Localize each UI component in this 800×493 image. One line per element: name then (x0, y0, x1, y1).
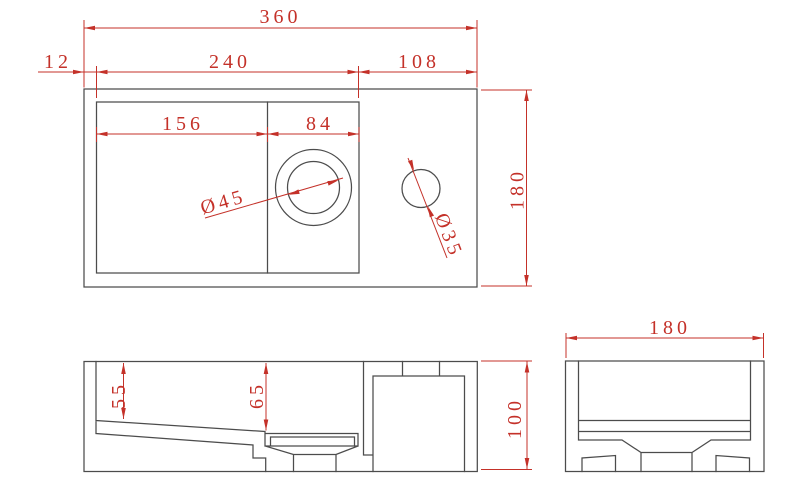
dim-arrowhead (348, 70, 359, 75)
dim-arrowhead (97, 70, 108, 75)
dim-arrowhead (466, 26, 477, 31)
dim-arrowhead (264, 420, 269, 431)
top-view-geometry (84, 89, 477, 287)
dim-arrowhead (257, 132, 268, 137)
dim-text-180-top: 180 (507, 168, 529, 210)
front-view-outline (84, 362, 477, 472)
dim-arrowhead (73, 70, 84, 75)
dim-arrowhead (466, 70, 477, 75)
dim-text-dia35: Ø35 (430, 210, 467, 261)
dim-overall-width: 360 (84, 6, 477, 88)
dim-arrowhead (524, 90, 529, 101)
dim-side-depth: 180 (566, 317, 764, 358)
dim-text-156: 156 (162, 113, 204, 135)
faucet-hole-circle (402, 170, 440, 208)
dim-arrowhead (268, 132, 279, 137)
dim-arrowhead (264, 363, 269, 374)
top-view: 360 12 240 108 156 84 (38, 6, 532, 287)
dim-arrowhead (348, 132, 359, 137)
dim-arrowhead (753, 336, 764, 341)
dim-arrowhead (566, 336, 577, 341)
dim-faucet-diameter: Ø35 (408, 158, 467, 261)
dim-text-12: 12 (44, 51, 72, 73)
basin-dimension-drawing: 360 12 240 108 156 84 (0, 0, 800, 493)
front-view: 55 65 100 (84, 361, 532, 472)
dim-arrowhead (121, 363, 126, 374)
side-view-outline (566, 361, 765, 472)
dim-depth-left: 55 (108, 363, 130, 419)
dim-arrowhead (525, 458, 530, 469)
dim-text-240: 240 (209, 51, 251, 73)
dim-text-180-side: 180 (649, 317, 691, 339)
top-view-outline (84, 89, 477, 287)
dim-arrowhead (84, 26, 95, 31)
dim-overall-depth: 180 (481, 90, 532, 286)
dim-basin-sections: 156 84 (97, 113, 360, 142)
dim-arrowhead (97, 132, 108, 137)
dim-depth-at-drain: 65 (246, 363, 268, 431)
dim-text-84: 84 (306, 113, 334, 135)
dim-text-108: 108 (398, 51, 440, 73)
drain-hole-circle (288, 162, 340, 214)
front-view-section-lines (96, 362, 465, 472)
technical-drawing-canvas: 360 12 240 108 156 84 (0, 0, 800, 493)
dim-overall-height: 100 (481, 361, 532, 470)
side-view: 180 (566, 317, 765, 472)
dim-arrowhead (524, 275, 529, 286)
dim-text-55: 55 (108, 381, 130, 409)
dim-text-65: 65 (246, 381, 268, 409)
side-view-geometry (566, 361, 765, 472)
front-view-geometry (84, 362, 477, 472)
dim-drain-diameter: Ø45 (198, 178, 343, 219)
dim-arrowhead (359, 70, 370, 75)
dim-text-100: 100 (504, 397, 526, 439)
dim-width-breakdown: 12 240 108 (38, 51, 477, 98)
side-view-section-lines (579, 361, 751, 472)
dim-text-dia45: Ø45 (198, 185, 249, 219)
dim-arrowhead (525, 362, 530, 373)
dim-text-360: 360 (260, 6, 302, 28)
